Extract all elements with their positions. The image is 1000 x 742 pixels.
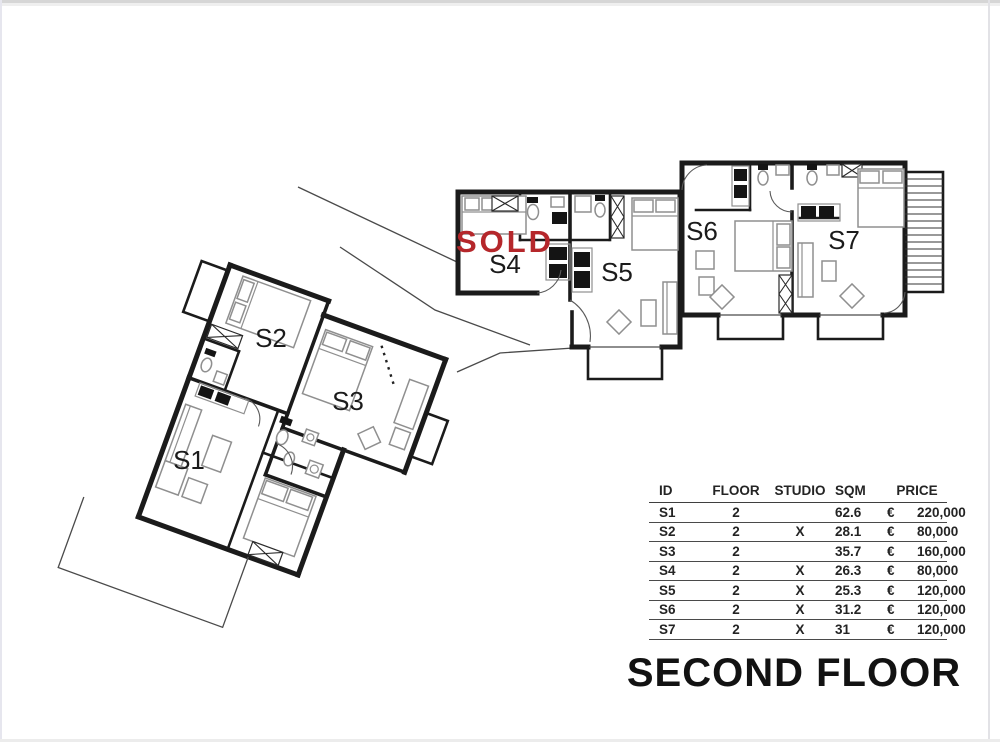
col-header-price: PRICE (887, 483, 947, 503)
cell-floor: 2 (705, 522, 767, 542)
cell-studio (767, 542, 833, 562)
cell-studio: X (767, 522, 833, 542)
col-header-sqm: SQM (833, 483, 887, 503)
table-row: S3 2 35.7 € 160,000 (649, 542, 947, 562)
cell-sqm: 31 (833, 620, 887, 640)
currency-symbol: € (887, 581, 917, 601)
cell-floor: 2 (705, 581, 767, 601)
kitchen-icon (195, 383, 249, 414)
unit-label-s3: S3 (332, 386, 364, 416)
col-header-id: ID (649, 483, 705, 503)
bathroom-fixtures (807, 164, 862, 185)
table-row: S2 2 X 28.1 € 80,000 (649, 522, 947, 542)
wardrobe-icon (779, 275, 792, 313)
cell-id: S3 (649, 542, 705, 562)
cell-id: S7 (649, 620, 705, 640)
currency-symbol: € (887, 600, 917, 620)
table-row: S5 2 X 25.3 € 120,000 (649, 581, 947, 601)
cell-price: 160,000 (917, 542, 947, 562)
cell-id: S5 (649, 581, 705, 601)
table-header-row: ID FLOOR STUDIO SQM PRICE (649, 483, 947, 503)
table-row: S7 2 X 31 € 120,000 (649, 620, 947, 640)
cell-id: S2 (649, 522, 705, 542)
cell-studio (767, 503, 833, 523)
unit-label-s6: S6 (686, 216, 718, 246)
right-cluster (682, 163, 943, 339)
currency-symbol: € (887, 561, 917, 581)
cell-price: 120,000 (917, 581, 947, 601)
cell-price: 80,000 (917, 522, 947, 542)
floorplan-page: S1 S2 S3 S4 S5 S6 S7 SOLD ID FLOOR STUDI… (0, 0, 1000, 742)
staircase-icon (905, 172, 943, 292)
sofa-icon (696, 251, 734, 309)
col-header-floor: FLOOR (705, 483, 767, 503)
cell-sqm: 26.3 (833, 561, 887, 581)
bathroom-fixtures (272, 416, 320, 456)
wardrobe-icon (492, 196, 518, 211)
bathroom-fixtures (575, 195, 605, 217)
cell-price: 120,000 (917, 620, 947, 640)
toilet-icon (282, 451, 324, 478)
currency-symbol: € (887, 503, 917, 523)
bed-icon (735, 221, 792, 271)
bathroom-fixtures (527, 197, 567, 224)
cell-price: 120,000 (917, 600, 947, 620)
table-row: S6 2 X 31.2 € 120,000 (649, 600, 947, 620)
col-header-studio: STUDIO (767, 483, 833, 503)
cell-floor: 2 (705, 542, 767, 562)
cell-price: 220,000 (917, 503, 947, 523)
left-cluster (58, 245, 472, 675)
unit-label-s5: S5 (601, 257, 633, 287)
price-table-container: ID FLOOR STUDIO SQM PRICE S1 2 62.6 € 22… (649, 483, 947, 640)
desk-icon (354, 369, 429, 462)
unit-label-s7: S7 (828, 225, 860, 255)
bed-icon (632, 198, 678, 250)
cell-sqm: 35.7 (833, 542, 887, 562)
cell-id: S6 (649, 600, 705, 620)
cell-sqm: 28.1 (833, 522, 887, 542)
sold-stamp: SOLD (456, 224, 554, 259)
cell-studio: X (767, 581, 833, 601)
dashed-partition (370, 346, 406, 387)
price-table: ID FLOOR STUDIO SQM PRICE S1 2 62.6 € 22… (649, 483, 947, 640)
bathroom-fixtures (758, 164, 789, 185)
cell-sqm: 62.6 (833, 503, 887, 523)
currency-symbol: € (887, 542, 917, 562)
currency-symbol: € (887, 620, 917, 640)
middle-cluster (458, 192, 680, 379)
unit-label-s2: S2 (255, 323, 287, 353)
kitchen-icon (572, 248, 592, 292)
cell-studio: X (767, 600, 833, 620)
cell-sqm: 25.3 (833, 581, 887, 601)
unit-label-s1: S1 (173, 445, 205, 475)
photo-edge-top-fade (0, 3, 1000, 6)
cell-floor: 2 (705, 620, 767, 640)
cell-studio: X (767, 561, 833, 581)
cell-studio: X (767, 620, 833, 640)
cell-id: S4 (649, 561, 705, 581)
photo-edge-right (988, 0, 990, 742)
cell-sqm: 31.2 (833, 600, 887, 620)
photo-edge-left (0, 0, 2, 742)
cell-id: S1 (649, 503, 705, 523)
page-title: SECOND FLOOR (624, 651, 964, 696)
wardrobe-icon (611, 196, 624, 238)
kitchen-icon (732, 166, 749, 206)
cell-floor: 2 (705, 503, 767, 523)
cell-floor: 2 (705, 600, 767, 620)
table-row: S4 2 X 26.3 € 80,000 (649, 561, 947, 581)
cell-floor: 2 (705, 561, 767, 581)
sofa-icon (607, 282, 677, 334)
cell-price: 80,000 (917, 561, 947, 581)
bed-icon (858, 169, 904, 227)
currency-symbol: € (887, 522, 917, 542)
table-row: S1 2 62.6 € 220,000 (649, 503, 947, 523)
